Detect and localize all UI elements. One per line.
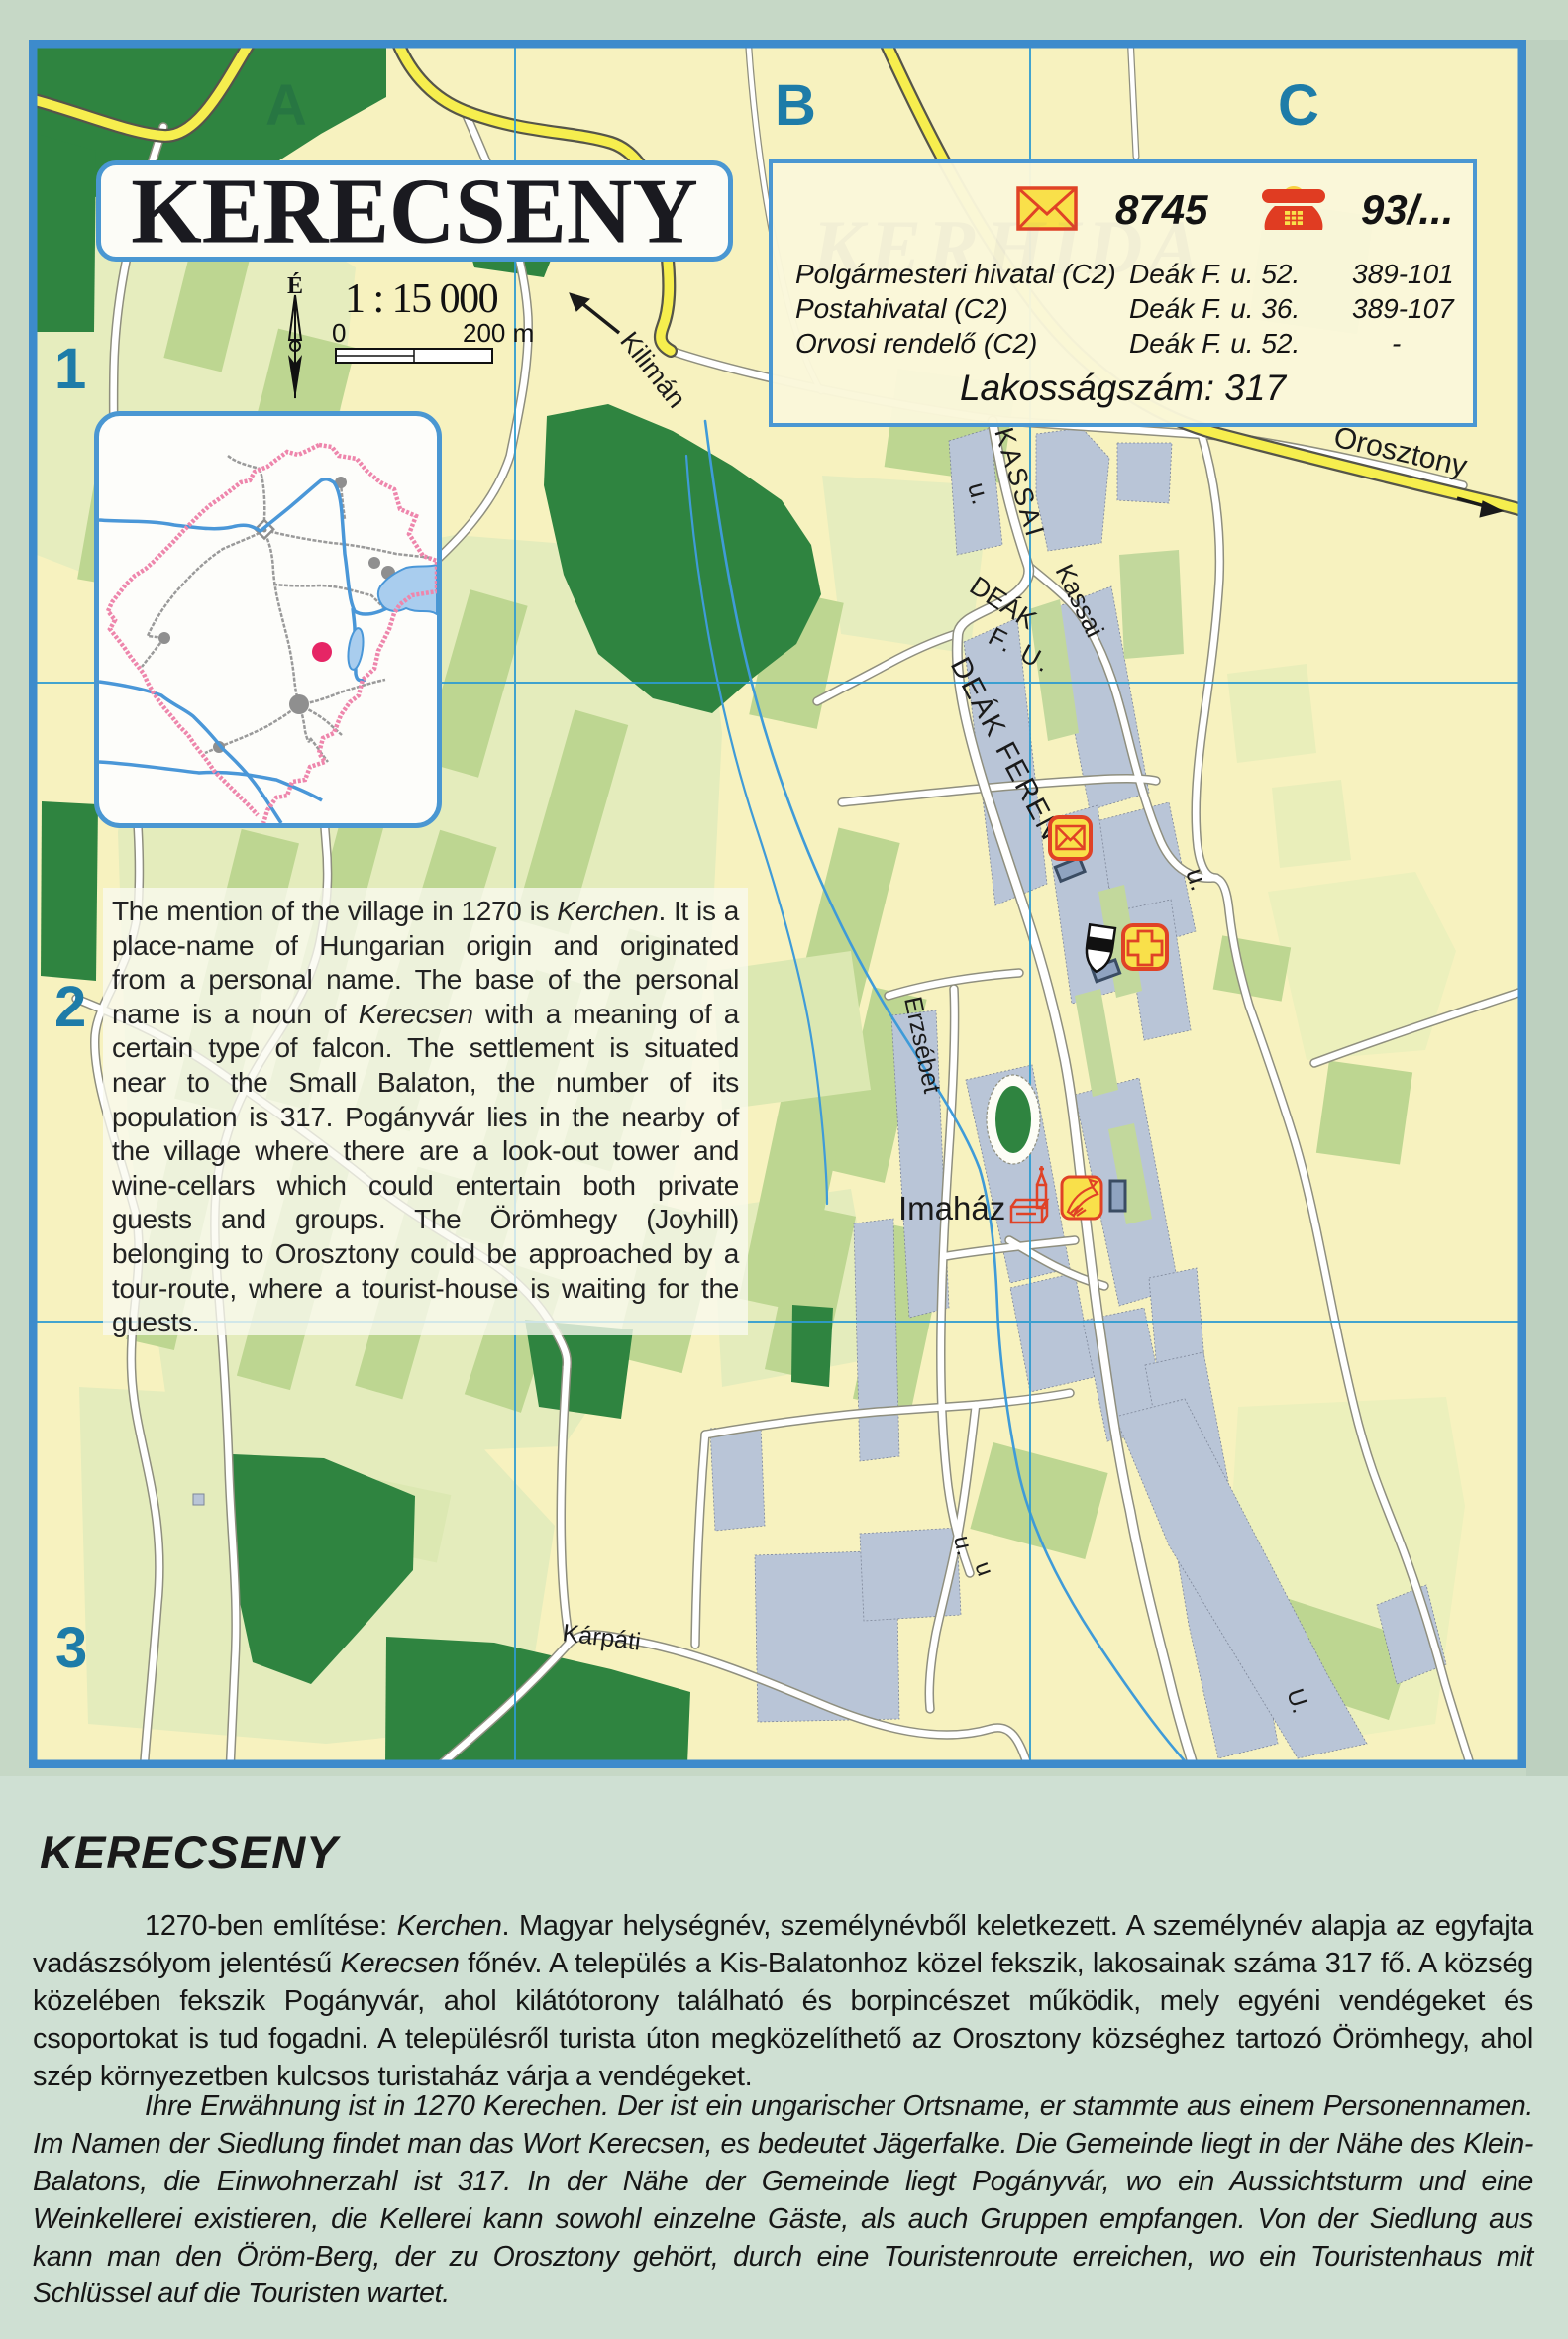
svg-text:2: 2 <box>54 975 86 1039</box>
svg-text:3: 3 <box>55 1616 87 1680</box>
svg-text:B: B <box>775 73 816 138</box>
svg-text:A: A <box>265 73 307 138</box>
svg-text:200 m: 200 m <box>463 318 534 348</box>
svg-text:0: 0 <box>332 318 346 348</box>
svg-text:1 : 15 000: 1 : 15 000 <box>345 276 498 322</box>
svg-text:C: C <box>1278 73 1319 138</box>
svg-text:Imaház: Imaház <box>898 1190 1005 1226</box>
svg-text:1: 1 <box>54 337 86 401</box>
